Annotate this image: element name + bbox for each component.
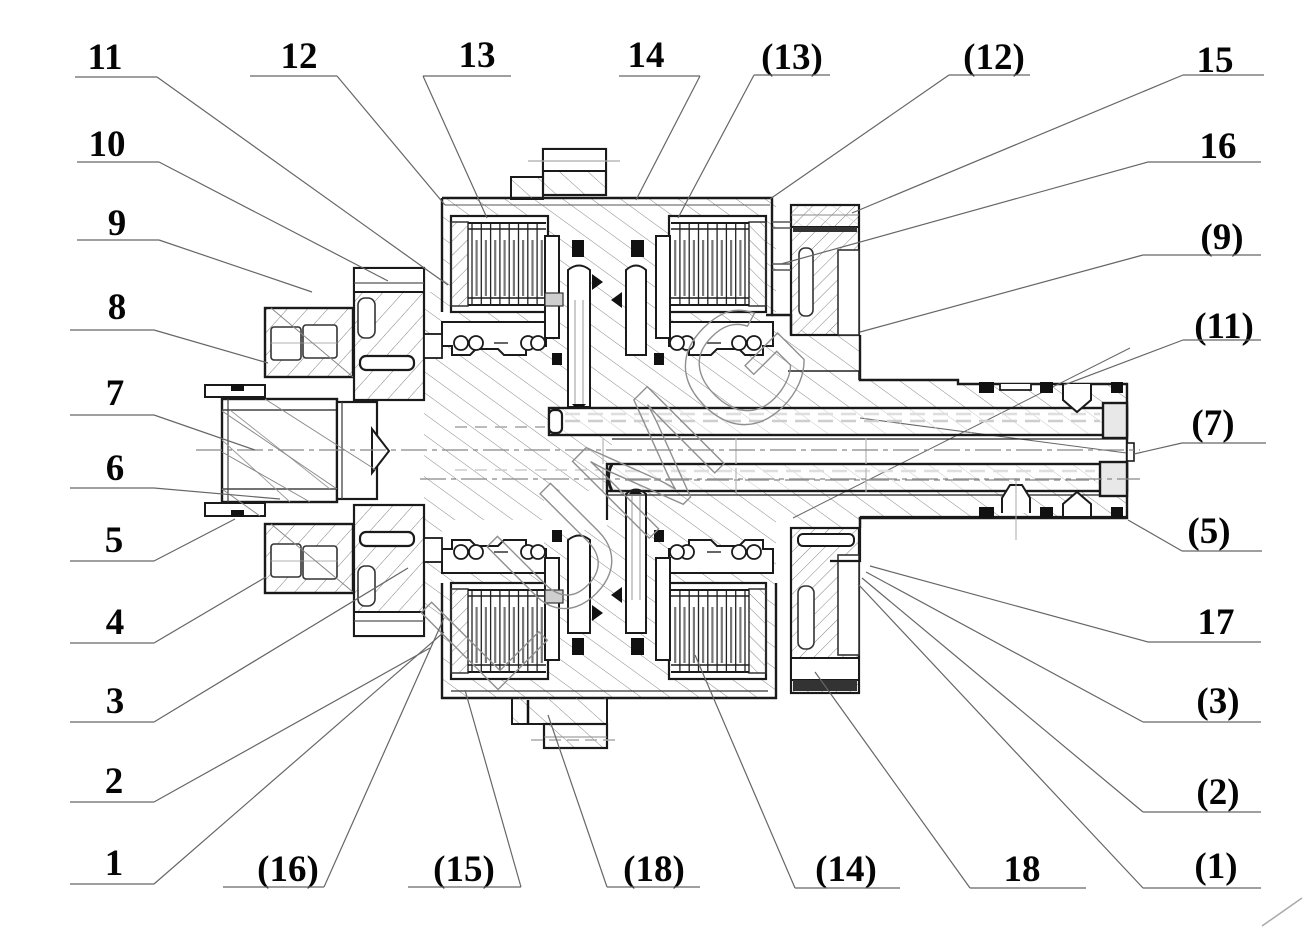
svg-text:18: 18 (1004, 849, 1041, 890)
svg-text:8: 8 (108, 287, 127, 328)
svg-text:(3): (3) (1196, 681, 1239, 722)
svg-text:(15): (15) (433, 849, 495, 890)
svg-text:(12): (12) (963, 37, 1025, 78)
svg-text:13: 13 (459, 35, 496, 76)
svg-text:14: 14 (628, 35, 665, 76)
svg-text:9: 9 (108, 203, 127, 244)
svg-text:(13): (13) (761, 37, 823, 78)
svg-text:2: 2 (105, 761, 124, 802)
svg-text:(16): (16) (257, 849, 319, 890)
svg-text:(11): (11) (1194, 306, 1254, 347)
svg-text:12: 12 (281, 36, 318, 77)
svg-text:7: 7 (106, 373, 125, 414)
svg-text:(5): (5) (1187, 511, 1230, 552)
svg-text:16: 16 (1200, 126, 1237, 167)
svg-text:(9): (9) (1200, 217, 1243, 258)
svg-text:10: 10 (89, 124, 126, 165)
svg-text:11: 11 (88, 37, 123, 78)
svg-text:4: 4 (106, 602, 125, 643)
svg-text:5: 5 (105, 520, 124, 561)
svg-text:(14): (14) (815, 849, 877, 890)
svg-text:3: 3 (106, 681, 125, 722)
svg-text:6: 6 (106, 448, 125, 489)
svg-text:(1): (1) (1194, 846, 1237, 887)
svg-text:17: 17 (1198, 602, 1235, 643)
svg-text:(2): (2) (1196, 772, 1239, 813)
svg-text:(18): (18) (623, 849, 685, 890)
svg-text:(7): (7) (1191, 403, 1234, 444)
svg-text:1: 1 (105, 843, 124, 884)
